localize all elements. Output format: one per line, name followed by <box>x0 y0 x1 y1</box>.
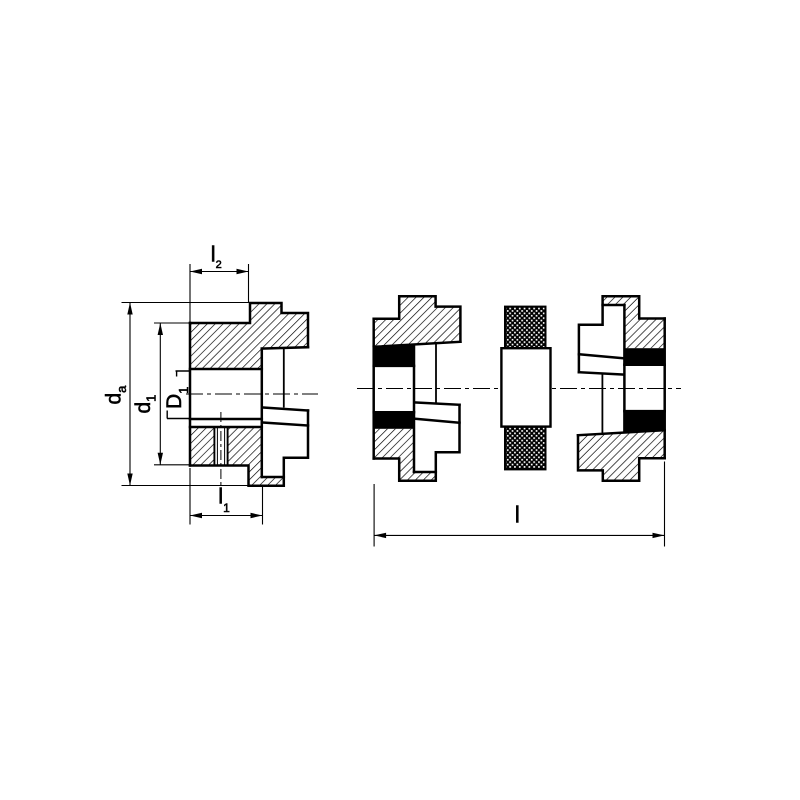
svg-text:d1: d1 <box>132 395 159 414</box>
svg-text:da: da <box>103 385 130 405</box>
svg-text:l2: l2 <box>211 242 222 271</box>
svg-text:l: l <box>515 502 520 528</box>
svg-text:l1: l1 <box>218 484 230 515</box>
svg-text:D1: D1 <box>163 387 191 409</box>
